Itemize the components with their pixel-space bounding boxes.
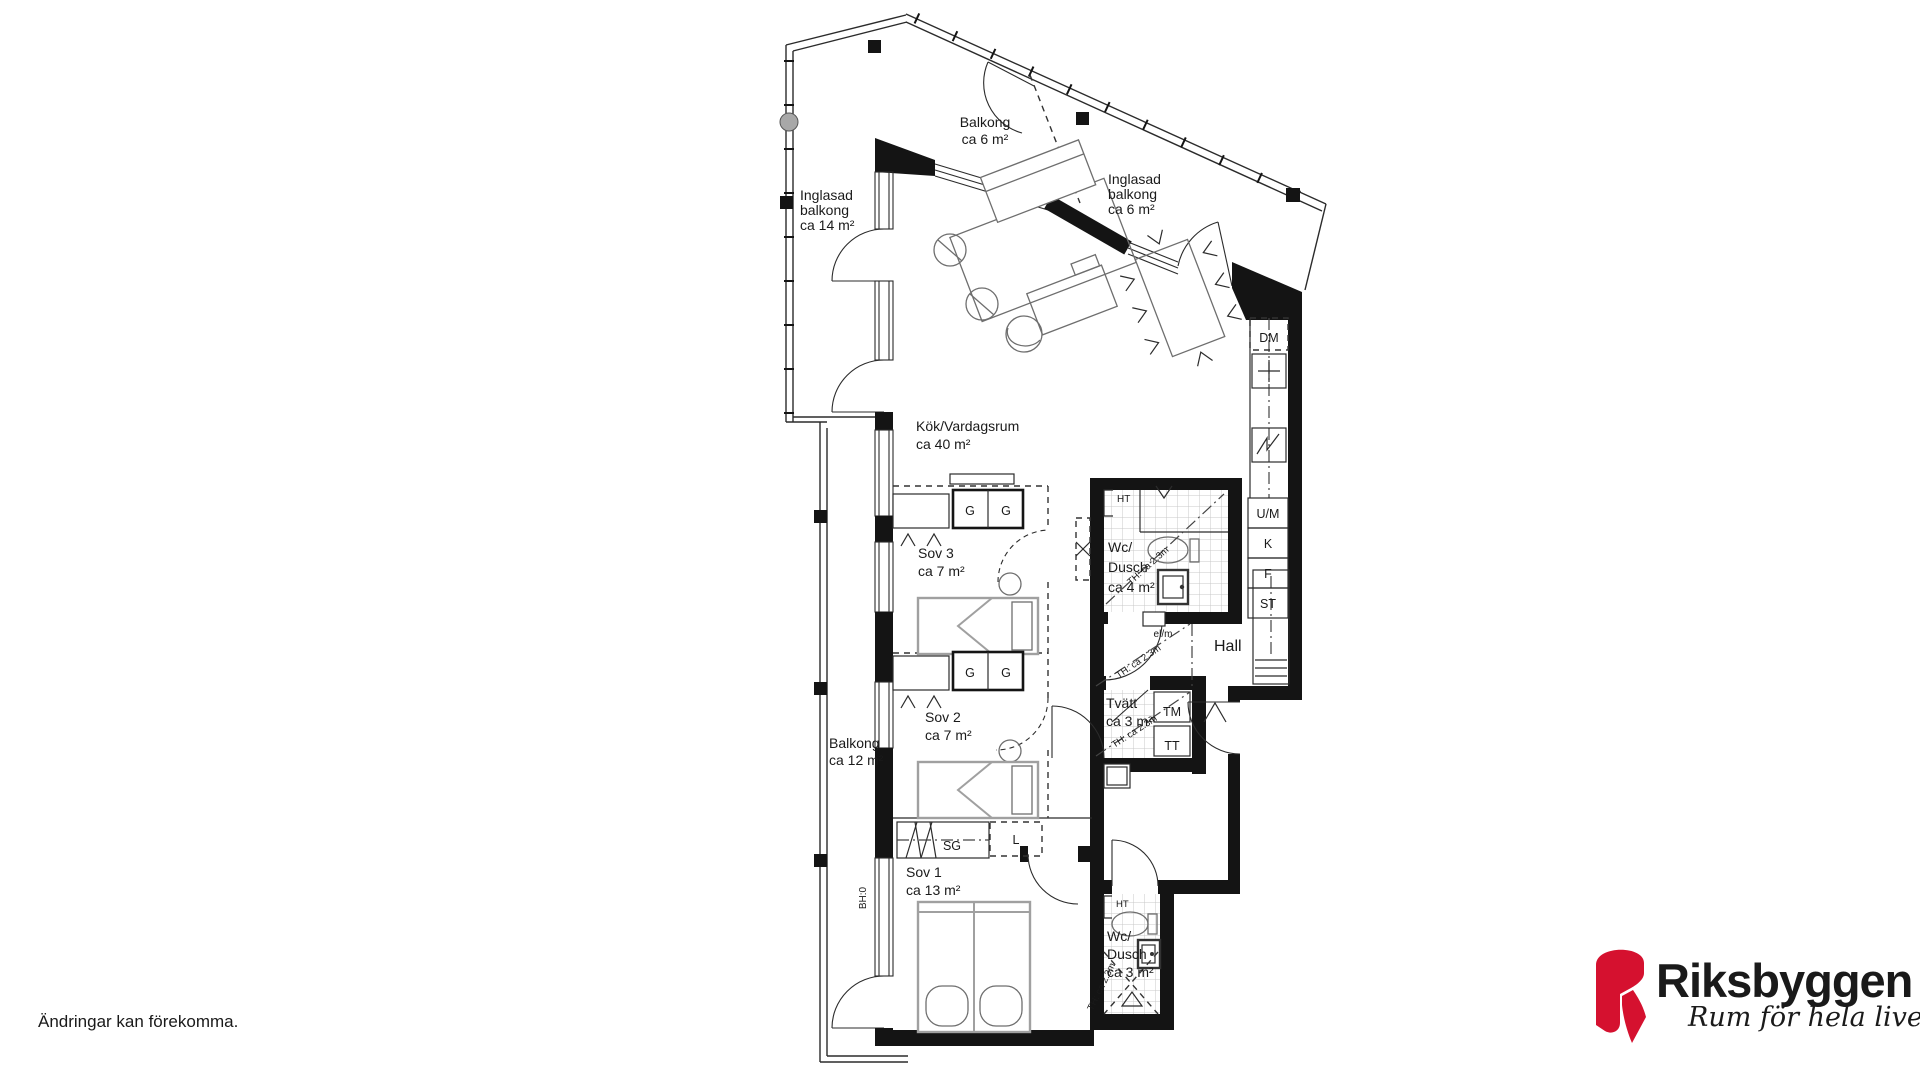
room-area: ca 3 m²: [1107, 964, 1154, 980]
room-sov2: G G Sov 2 ca 7 m²: [893, 652, 1038, 818]
room-label: balkong: [800, 202, 849, 218]
tt-label: TT: [1164, 739, 1180, 753]
room-label: Wc/: [1107, 928, 1131, 944]
brand-logo: Riksbyggen Rum för hela livet: [1596, 950, 1920, 1043]
room-label: Wc/: [1108, 539, 1132, 555]
desk: [893, 656, 949, 690]
disclaimer: Ändringar kan förekomma.: [38, 1012, 238, 1031]
kitchen-island: [1027, 265, 1117, 335]
g-label: G: [1001, 666, 1011, 680]
bh-annotation: BH:0: [858, 886, 869, 909]
living-room-furniture: [934, 136, 1252, 380]
room-label: Inglasad: [800, 187, 853, 203]
room-label: Balkong: [960, 114, 1011, 130]
ht-label: HT: [1117, 494, 1130, 505]
room-area: ca 13 m²: [906, 882, 961, 898]
room-label: Sov 1: [906, 864, 942, 880]
room-label: balkong: [1108, 186, 1157, 202]
room-area: ca 14 m²: [800, 217, 855, 233]
room-area: ca 12 m²: [829, 752, 884, 768]
floorplan-canvas: HT TH: ca 2.3m Wc/ Dusch ca 4 m² el/m TH…: [0, 0, 1920, 1080]
room-label: Kök/Vardagsrum: [916, 418, 1019, 434]
desk: [893, 494, 949, 528]
bed: [918, 598, 1038, 654]
room-area: ca 7 m²: [925, 727, 972, 743]
bed: [918, 762, 1038, 818]
g-label: G: [965, 504, 975, 518]
dining-set: [1110, 215, 1252, 381]
balcony-column: [780, 113, 798, 131]
room-label: Dusch: [1107, 946, 1147, 962]
sideboard: [950, 474, 1014, 484]
th-annotation: TH: ca 2.3m: [1114, 643, 1163, 681]
duct-shaft: [1076, 518, 1090, 580]
l-label: L: [1013, 833, 1020, 847]
kitchen-fixtures: DM U/M K F ST: [1248, 318, 1288, 618]
g-label: G: [965, 666, 975, 680]
g-label: G: [1001, 504, 1011, 518]
room-label: Inglasad: [1108, 171, 1161, 187]
room-area: ca 40 m²: [916, 436, 971, 452]
elm-label: el/m: [1154, 629, 1173, 640]
brand-name: Riksbyggen: [1656, 954, 1912, 1007]
room-sov3: G G Sov 3 ca 7 m²: [893, 474, 1038, 654]
entry-marker: [1204, 703, 1226, 722]
room-label: Tvätt: [1106, 695, 1137, 711]
um-label: U/M: [1257, 507, 1280, 521]
chair: [999, 573, 1021, 595]
tm-label: TM: [1163, 705, 1181, 719]
room-label: Dusch: [1108, 559, 1148, 575]
ht-label: HT: [1116, 899, 1129, 910]
st-label: ST: [1260, 597, 1276, 611]
sofa: [980, 140, 1095, 222]
room-area: ca 3 m²: [1106, 713, 1153, 729]
riksbyggen-icon: [1596, 950, 1646, 1043]
brand-tagline: Rum för hela livet: [1687, 1002, 1920, 1033]
room-label: Sov 2: [925, 709, 961, 725]
k-label: K: [1264, 537, 1273, 551]
room-area: ca 6 m²: [1108, 201, 1155, 217]
room-label: Balkong: [829, 735, 880, 751]
dm-label: DM: [1259, 331, 1278, 345]
sg-label: SG: [943, 839, 961, 853]
f-label: F: [1264, 567, 1272, 581]
room-label: Hall: [1214, 638, 1242, 655]
room-area: ca 6 m²: [962, 131, 1009, 147]
left-wall: [832, 172, 893, 1046]
room-area: ca 7 m²: [918, 563, 965, 579]
room-area: ca 4 m²: [1108, 579, 1155, 595]
chair: [999, 740, 1021, 762]
room-label: Sov 3: [918, 545, 954, 561]
